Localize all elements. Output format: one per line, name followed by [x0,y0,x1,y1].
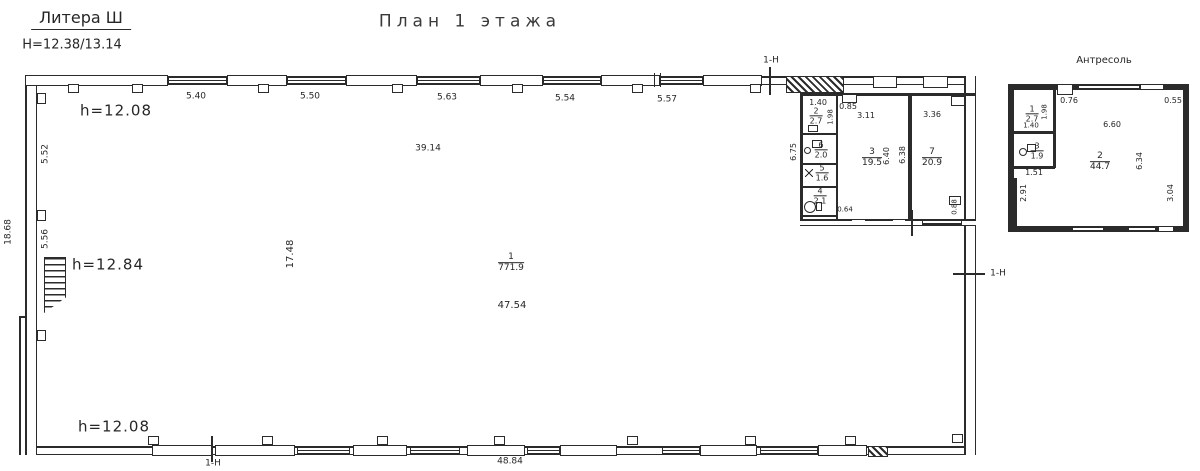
room3-height: 6.40 [883,147,891,165]
door-opening [893,220,905,225]
room4-label: 4 2.1 [814,186,827,205]
room7-number: 7 [922,147,942,158]
pilaster [512,84,523,93]
room3-area: 19.5 [862,159,882,169]
height-note: H=12.38/13.14 [22,39,121,52]
pilaster [392,84,403,93]
door-axis [911,210,913,236]
rooms-top-wall [800,93,976,96]
mezz-left-dim: 2.91 [1020,184,1028,202]
room6-number: 6 [815,140,828,150]
rooms-divider-3-7 [908,95,912,222]
hall-room-label: 1 771.9 [498,252,524,274]
section-line-right [953,273,985,275]
hall-room-area: 771.9 [498,264,524,274]
dim-interior-top: 39.14 [415,145,441,154]
room3-number: 3 [862,147,882,158]
section-label-top: 1-Н [763,57,779,66]
mezz-room1-number: 1 [1026,104,1039,114]
window-glazing [1072,226,1104,232]
room5-area: 1.6 [816,174,829,183]
window-frame [560,445,617,456]
pilaster [148,436,159,445]
window-glazing [660,76,703,85]
pilaster [37,210,46,221]
floor-plan-canvas: Литера Ш H=12.38/13.14 План 1 этажа [0,0,1200,471]
mezz-room1-height: 1.98 [1042,104,1049,120]
window-frame [700,445,757,456]
window-glazing [1128,226,1156,232]
window-frame [1140,84,1164,90]
window-frame [818,445,867,456]
hatched-wall [786,76,844,93]
mezz-wall-left-lower [1008,178,1017,232]
wall-left-step-joint [19,316,26,318]
window-frame [353,445,407,456]
pilaster [627,436,638,445]
mezz-room2-right-dim: 6.34 [1136,152,1144,170]
window-frame [346,75,417,86]
pilaster [845,436,856,445]
pilaster [132,84,143,93]
mezz-room3-width: 1.51 [1025,169,1043,177]
door-opening [852,220,865,225]
wall-joint-mark [654,73,655,87]
sink-icon [804,147,811,154]
mezz-room2-top-dim: 6.60 [1103,121,1121,129]
stairs-icon [44,257,66,313]
niche [1057,84,1073,95]
mezz-room3-area: 1.9 [1031,152,1044,161]
dim-top-2: 5.50 [300,93,320,102]
dim-left-lower: 5.56 [42,229,51,249]
mezz-room3-label: 3 1.9 [1031,141,1044,160]
rooms-column-divider [800,215,838,217]
window-frame [601,75,660,86]
window-glazing [287,76,346,85]
pilaster [494,436,505,445]
window-frame [923,76,948,88]
room2-area: 2.7 [810,117,823,126]
room4-number: 4 [814,186,827,196]
room7-height: 6.38 [899,146,907,164]
mezz-room2-number: 2 [1090,151,1110,162]
room7-side-dim: 0.88 [952,199,959,215]
wall-left-step [19,316,21,455]
window-frame [873,76,897,88]
mezz-room1-width: 1.40 [1023,123,1039,130]
mezz-wall-right [1183,84,1189,232]
window-frame [152,445,213,456]
litera-label: Литера Ш [31,10,131,30]
rooms-column-divider [800,133,838,135]
window-frame [227,75,287,86]
plan-title: План 1 этажа [379,14,561,31]
mezz-room3-number: 3 [1031,141,1044,151]
dim-top-1: 5.40 [186,93,206,102]
pilaster [37,330,46,341]
window-glazing [168,76,227,85]
window-glazing [662,446,700,455]
window-glazing [527,446,560,455]
room6-area: 2.0 [815,151,828,160]
window-glazing [922,219,962,225]
sink-icon [1019,148,1027,156]
rooms-column-left-wall [800,95,803,221]
rooms-column-right-wall [836,95,838,221]
dim-bottom: 48.84 [497,458,523,467]
room7-area: 20.9 [922,159,942,169]
dim-top-4: 5.54 [555,95,575,104]
dim-interior-mid: 17.48 [286,240,296,269]
section-label-right: 1-Н [990,270,1006,279]
window-glazing [417,76,480,85]
pilaster [750,84,761,93]
window-frame [467,445,525,456]
room3-width: 3.11 [857,112,875,120]
pilaster [68,84,79,93]
section-label-bottom: 1-Н [205,460,221,469]
section-line-top [769,67,771,95]
window-frame [215,445,295,456]
pilaster [262,436,273,445]
room6-label: 6 2.0 [815,140,828,159]
hatched-wall [868,446,888,457]
mezz-room2-label: 2 44.7 [1090,151,1110,173]
hall-room-number: 1 [498,252,524,263]
window-glazing [760,446,818,455]
ceiling-height-top: h=12.08 [80,104,152,119]
pilaster [377,436,388,445]
mezzanine-title: Антресоль [1076,56,1132,66]
pilaster [37,93,46,104]
room7-label: 7 20.9 [922,147,942,169]
ceiling-height-mid: h=12.84 [72,258,144,273]
wall-detail [951,96,965,106]
ceiling-height-bottom: h=12.08 [78,420,150,435]
vent-icon [805,169,813,177]
wall-joint-mark [660,73,661,87]
mezz-partition-h [1014,131,1055,134]
room5-label: 5 1.6 [816,163,829,182]
room2-number: 2 [810,106,823,116]
window-glazing [1078,84,1140,90]
mezz-partition-v [1053,90,1056,168]
wall-detail [808,125,818,132]
window-frame [1158,226,1174,232]
window-glazing [297,446,350,455]
pilaster [258,84,269,93]
room5-number: 5 [816,163,829,173]
room4-bottom-dim: 0.64 [837,207,853,214]
room7-width: 3.36 [923,111,941,119]
window-glazing [410,446,460,455]
dim-left-outer: 18.68 [5,219,14,245]
room3-niche-dim: 0.85 [839,103,857,111]
pilaster [632,84,643,93]
window-frame [25,75,168,86]
room3-label: 3 19.5 [862,147,882,169]
room2-label: 2 2.7 [810,106,823,125]
dim-top-3: 5.63 [437,94,457,103]
pilaster [952,434,963,443]
wall-right [964,76,976,455]
dim-interior-low: 47.54 [498,301,527,311]
dim-left-upper: 5.52 [42,144,51,164]
mezz-room2-area: 44.7 [1090,163,1110,173]
wall-left [25,76,37,455]
rooms-column-height: 6.75 [790,143,798,161]
mezz-dim-top-left: 0.76 [1060,97,1078,105]
mezz-right-dim: 3.04 [1167,184,1175,202]
room2-height: 1.98 [828,109,835,125]
room4-area: 2.1 [814,197,827,206]
window-glazing [543,76,601,85]
pilaster [745,436,756,445]
mezz-dim-top-right: 0.55 [1164,97,1182,105]
dim-top-5: 5.57 [657,96,677,105]
